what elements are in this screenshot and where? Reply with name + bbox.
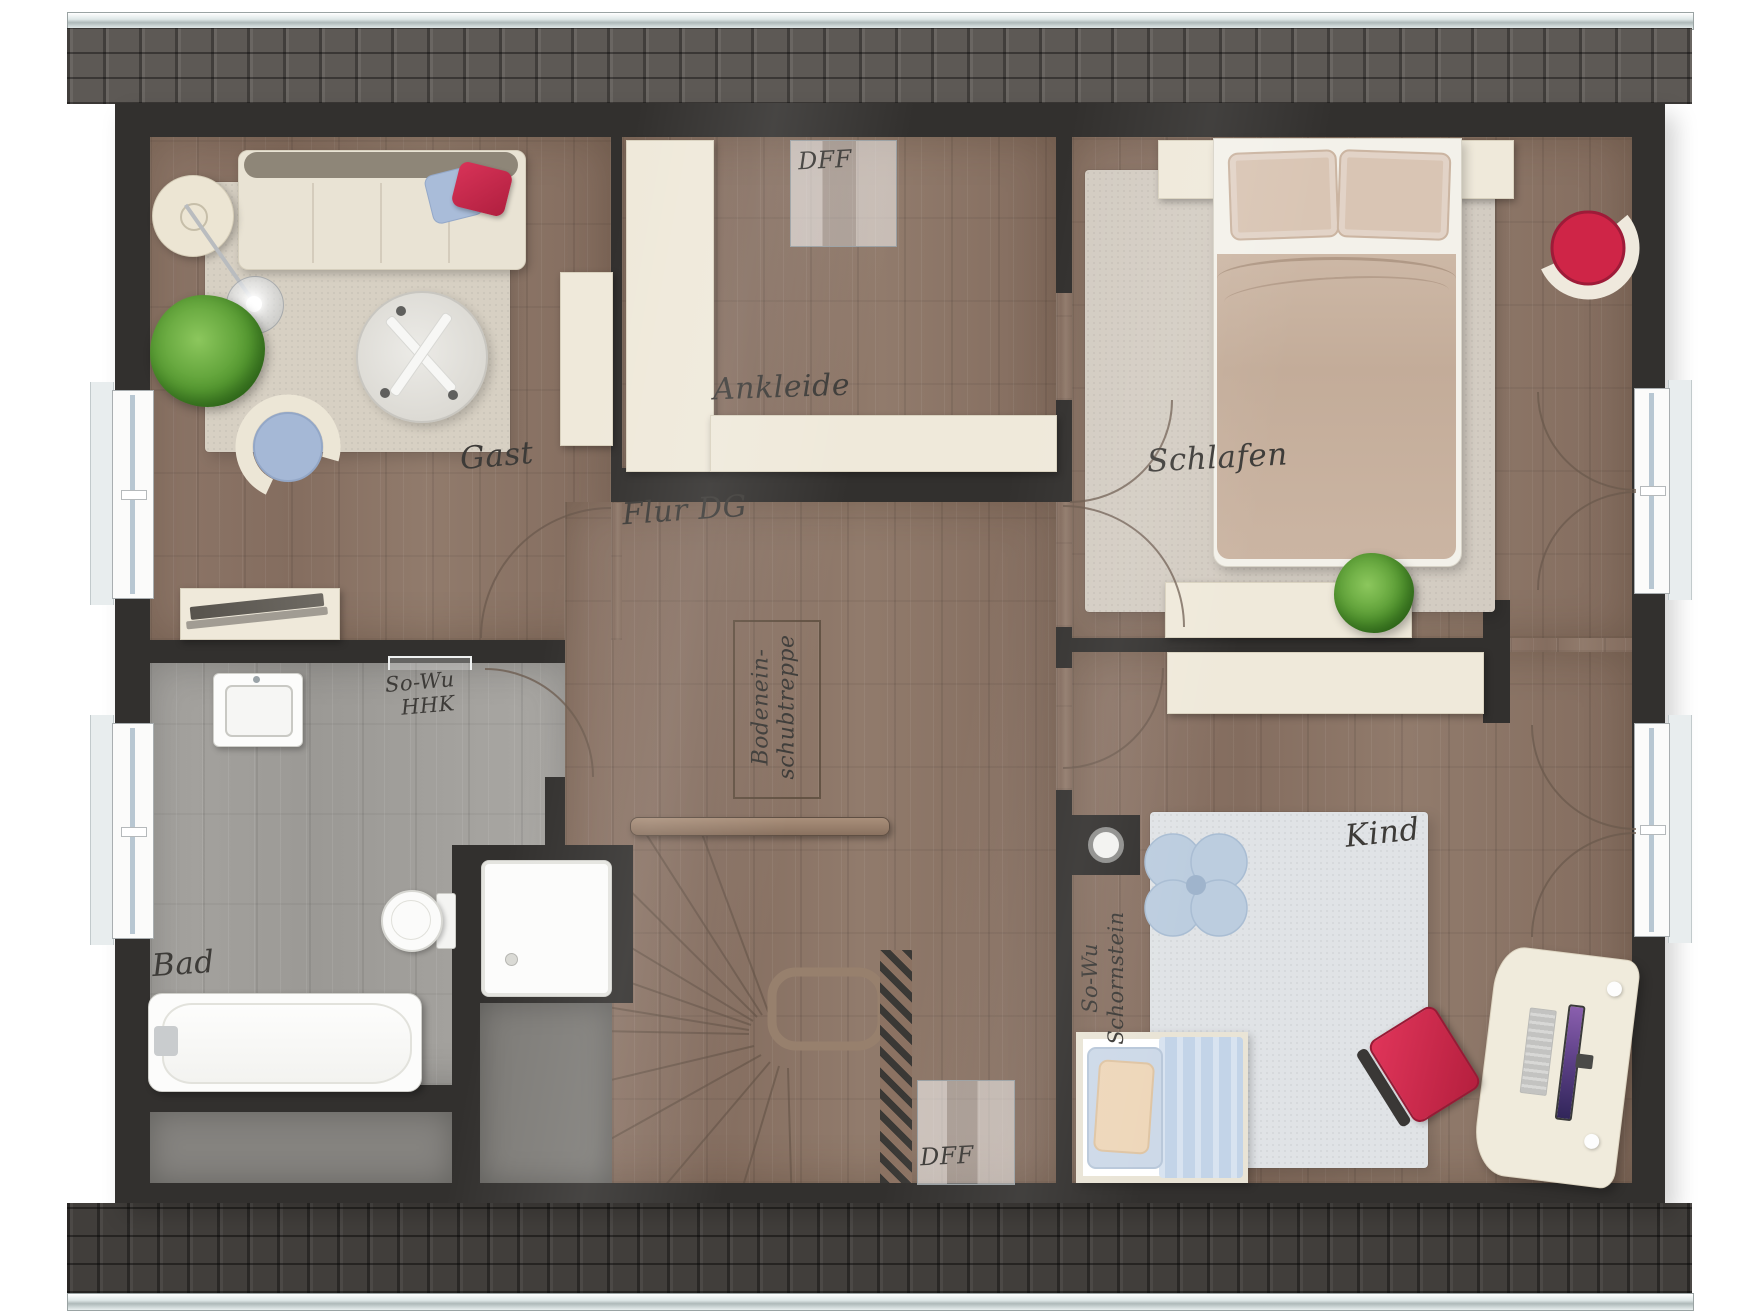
window-left-bad xyxy=(112,723,154,939)
flower-pouf xyxy=(1137,826,1255,944)
loft-ladder-label-line2: schubtreppe xyxy=(775,634,801,779)
loft-ladder-label: Bodenein- schubtreppe xyxy=(749,634,802,779)
desk-dot xyxy=(1583,1133,1600,1150)
sink-bowl xyxy=(225,685,293,737)
staircase xyxy=(612,833,880,1183)
roof-tiles-bottom xyxy=(67,1203,1692,1293)
chimney-label: So-Wu Schornstein xyxy=(1077,911,1130,1044)
balcony-door-schlafen xyxy=(1634,388,1670,594)
loft-ladder-label-line1: Bodenein- xyxy=(749,634,775,779)
kind-bed-blanket xyxy=(1159,1037,1243,1178)
towel-radiator-label: So-Wu HHK xyxy=(384,667,458,721)
desk-keyboard xyxy=(1520,1007,1557,1096)
window-handle xyxy=(1640,486,1666,496)
sideboard-plant xyxy=(1334,553,1414,633)
room-schlafen-label: Schlafen xyxy=(1146,436,1288,479)
gast-highboard xyxy=(560,272,613,446)
desk-monitor-stand xyxy=(1575,1053,1594,1069)
bathtub-basin xyxy=(162,1003,412,1084)
toilet-seat xyxy=(391,900,431,940)
shower-tray xyxy=(481,860,612,997)
double-bed xyxy=(1213,138,1462,567)
dff-top-label: DFF xyxy=(797,145,852,176)
towel-radiator xyxy=(388,656,472,670)
kind-wardrobe xyxy=(1167,652,1484,714)
floor-plan-canvas: Gast Ankleide Schlafen Bad Flur DG Kind … xyxy=(0,0,1754,1315)
roof-gutter-bottom xyxy=(67,1293,1694,1311)
desk xyxy=(1471,944,1642,1190)
coffee-table-foot xyxy=(380,388,390,398)
kind-door-opening xyxy=(1056,668,1072,790)
window-sill-left-2 xyxy=(90,715,114,945)
window-sill-right-1 xyxy=(1668,380,1692,600)
coffee-table-foot xyxy=(396,306,406,316)
window-sill-right-2 xyxy=(1668,715,1692,943)
chimney-label-line1: So-Wu xyxy=(1077,911,1103,1044)
wardrobe-vertical xyxy=(626,140,714,472)
bad-door-wall-stub xyxy=(545,777,565,845)
room-gast-label: Gast xyxy=(459,435,535,477)
dff-bottom-label: DFF xyxy=(919,1141,974,1172)
lounge-chair xyxy=(228,387,348,507)
window-handle xyxy=(1640,825,1666,835)
window-handle xyxy=(121,490,147,500)
wardrobe-horizontal xyxy=(710,415,1057,472)
shower-drain xyxy=(505,953,518,966)
window-left-gast xyxy=(112,390,154,599)
chimney-flue-icon xyxy=(1088,827,1124,863)
window-handle xyxy=(121,827,147,837)
room-ankleide-label: Ankleide xyxy=(712,368,850,408)
balcony-door-kind xyxy=(1634,723,1670,937)
bed-pillow xyxy=(1227,149,1339,241)
window-sill-left-1 xyxy=(90,382,114,605)
chimney-label-line2: Schornstein xyxy=(1103,911,1129,1044)
knee-storage-right xyxy=(480,1003,612,1183)
schlafen-kind-wall-pier xyxy=(1483,600,1510,723)
ankleide-schlafen-passage xyxy=(1056,293,1072,400)
gast-door-opening xyxy=(611,503,622,640)
kind-bed xyxy=(1076,1032,1248,1183)
schlafen-stool-chair xyxy=(1528,188,1648,308)
room-bad-label: Bad xyxy=(151,944,216,984)
kind-bed-pillow-beige xyxy=(1093,1059,1155,1155)
desk-dot xyxy=(1606,981,1623,998)
bathtub-faucet xyxy=(154,1026,178,1056)
knee-storage-left xyxy=(150,1112,452,1183)
schlafen-door-opening xyxy=(1056,502,1072,627)
sink-faucet xyxy=(253,676,260,683)
stair-handrail xyxy=(630,817,890,836)
bed-pillow xyxy=(1336,149,1451,241)
pier-side-floor-patch xyxy=(1510,638,1632,652)
nightstand-left xyxy=(1158,140,1214,199)
floor-lamp-bulb xyxy=(246,296,262,312)
roof-tiles-top xyxy=(67,28,1692,104)
nightstand-right xyxy=(1455,140,1514,199)
stair-hatched-parapet xyxy=(880,950,912,1183)
coffee-table-foot xyxy=(448,390,458,400)
bath-partition-wall xyxy=(452,1003,480,1130)
